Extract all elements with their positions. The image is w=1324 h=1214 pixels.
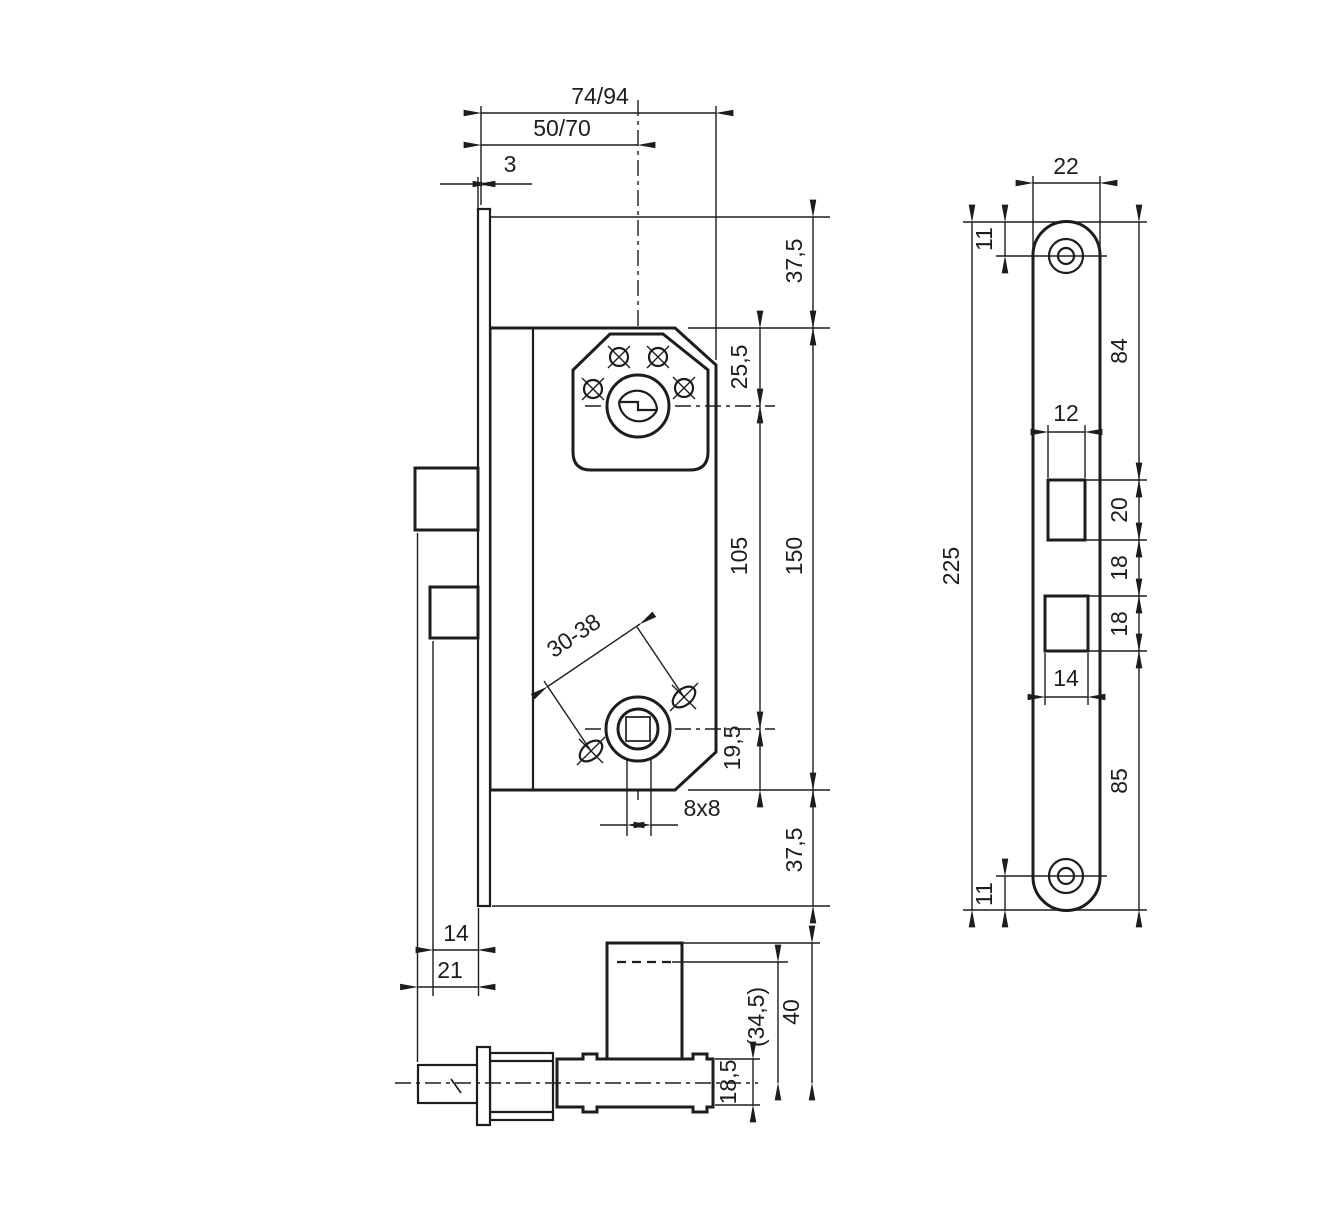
front-view: 74/94 50/70 3 37,5 25,5 105 19,5 150 37,… <box>415 83 830 1062</box>
dead-bolt <box>430 587 478 638</box>
dim-latch-protrusion: 21 <box>437 957 463 983</box>
dim-latch-opening-height: 20 <box>1106 497 1132 523</box>
dim-latch-opening-width: 12 <box>1053 400 1079 426</box>
dim-case-height: 150 <box>781 537 807 575</box>
faceplate-side-view: 22 225 11 84 12 20 18 18 14 85 11 <box>938 153 1147 911</box>
dim-deadbolt-opening-width: 14 <box>1053 665 1079 691</box>
lock-dimension-drawing: 74/94 50/70 3 37,5 25,5 105 19,5 150 37,… <box>0 0 1324 1214</box>
spindle-follower-inner <box>618 709 658 749</box>
dim-bottom-margin: 37,5 <box>781 828 807 873</box>
latch-opening <box>1048 480 1085 540</box>
dim-case-depth: 74/94 <box>571 83 629 109</box>
technical-drawing-svg: 74/94 50/70 3 37,5 25,5 105 19,5 150 37,… <box>0 0 1324 1214</box>
latch-bolt <box>415 468 478 530</box>
dim-top-margin: 37,5 <box>781 239 807 284</box>
dim-plate-width: 22 <box>1053 153 1079 179</box>
dim-case-top-to-cylinder: 25,5 <box>726 345 752 390</box>
dim-openings-gap: 18 <box>1106 555 1132 581</box>
dim-backset: 50/70 <box>533 115 591 141</box>
faceplate-outline <box>1033 221 1100 910</box>
dim-spindle-square: 8x8 <box>683 795 720 821</box>
faceplate-edge <box>478 209 490 906</box>
dim-cylinder-cut-length: (34,5) <box>743 987 769 1047</box>
dim-top-to-latch: 84 <box>1106 338 1132 364</box>
forend-flange <box>490 1053 553 1120</box>
dim-deadbolt-to-bottom: 85 <box>1106 768 1132 794</box>
bolt-bottom-view <box>418 1065 478 1103</box>
dim-bottom-screw-offset: 11 <box>971 882 997 906</box>
dim-deadbolt-opening-height: 18 <box>1106 611 1132 637</box>
dim-top-screw-offset: 11 <box>971 227 997 251</box>
dim-plate-height: 225 <box>938 547 964 585</box>
dim-cylinder-protrusion: 40 <box>778 999 804 1025</box>
dim-deadbolt-protrusion: 14 <box>443 920 469 946</box>
faceplate-bottom-view <box>477 1047 490 1125</box>
dim-cylinder-to-spindle: 105 <box>726 537 752 575</box>
dim-spindle-to-case-bottom: 19,5 <box>719 726 745 771</box>
dim-faceplate-thickness: 3 <box>504 151 517 177</box>
dim-case-thickness: 18,5 <box>715 1060 741 1105</box>
cylinder-body <box>607 943 682 1059</box>
deadbolt-opening <box>1045 596 1088 651</box>
